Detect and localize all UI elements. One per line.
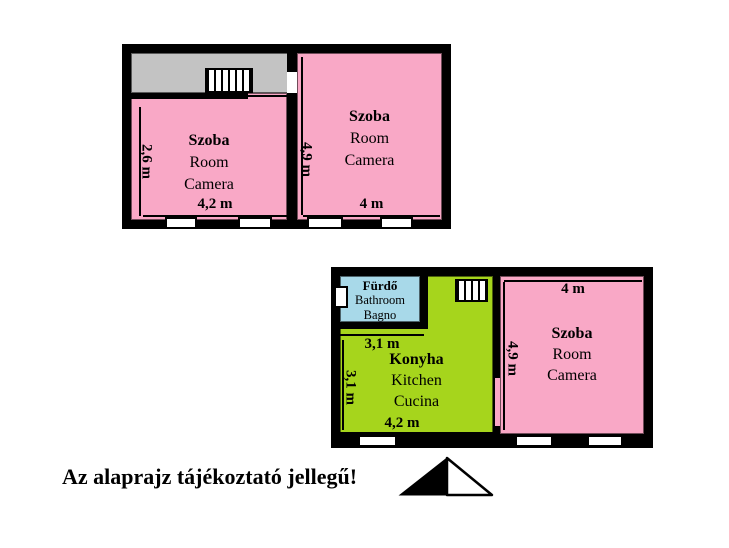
- room-name-it: Camera: [297, 150, 442, 172]
- room-name-hu: Fürdő: [340, 278, 420, 293]
- corridor-bottom-wall: [131, 93, 248, 99]
- north-arrow-light-half: [447, 458, 492, 495]
- dimension-line: [303, 215, 440, 217]
- bathroom-bottom-wall: [340, 322, 428, 329]
- disclaimer-text: Az alaprajz tájékoztató jellegű!: [62, 464, 357, 490]
- lower-floor-unit: Fürdő Bathroom Bagno 3,1 m 3,1 m Konyha …: [331, 267, 653, 448]
- kitchen-door: [358, 435, 397, 447]
- floor-plan: Szoba Room Camera 2,6 m 4,2 m Szoba Room…: [0, 0, 729, 548]
- window: [515, 435, 553, 447]
- upper-door-opening: [287, 72, 297, 93]
- room-name-en: Kitchen: [340, 370, 493, 391]
- room-name-hu: Szoba: [500, 323, 644, 344]
- stairs-icon: [205, 68, 253, 93]
- kitchen-width-label: 4,2 m: [337, 416, 467, 431]
- room-name-hu: Szoba: [297, 106, 442, 128]
- window: [587, 435, 623, 447]
- lower-room-label: Szoba Room Camera: [500, 323, 644, 386]
- kitchen-label: Konyha Kitchen Cucina: [340, 349, 493, 412]
- bathroom-label: Fürdő Bathroom Bagno: [340, 278, 420, 323]
- room-name-it: Camera: [500, 365, 644, 386]
- upper-right-room-width-label: 4 m: [303, 197, 440, 212]
- dimension-line: [143, 215, 287, 217]
- window: [380, 217, 413, 229]
- north-arrow-dark-half: [400, 458, 449, 495]
- stairs-icon: [455, 279, 488, 302]
- window: [307, 217, 343, 229]
- upper-floor-unit: Szoba Room Camera 2,6 m 4,2 m Szoba Room…: [122, 44, 451, 229]
- upper-right-room-depth-label: 4,9 m: [299, 140, 314, 180]
- lower-room-width-label: 4 m: [504, 282, 642, 297]
- dimension-line: [337, 432, 493, 434]
- room-name-en: Room: [500, 344, 644, 365]
- window: [165, 217, 197, 229]
- room-name-en: Bathroom: [340, 293, 420, 308]
- room-name-it: Cucina: [340, 391, 493, 412]
- upper-right-room-label: Szoba Room Camera: [297, 106, 442, 172]
- corridor-door-threshold: [248, 95, 288, 97]
- room-name-it: Bagno: [340, 308, 420, 323]
- north-arrow-icon: [396, 452, 500, 502]
- room-name-hu: Konyha: [340, 349, 493, 370]
- upper-left-room-width-label: 4,2 m: [143, 197, 287, 212]
- room-name-en: Room: [297, 128, 442, 150]
- window: [238, 217, 272, 229]
- upper-left-room-depth-label: 2,6 m: [139, 142, 154, 182]
